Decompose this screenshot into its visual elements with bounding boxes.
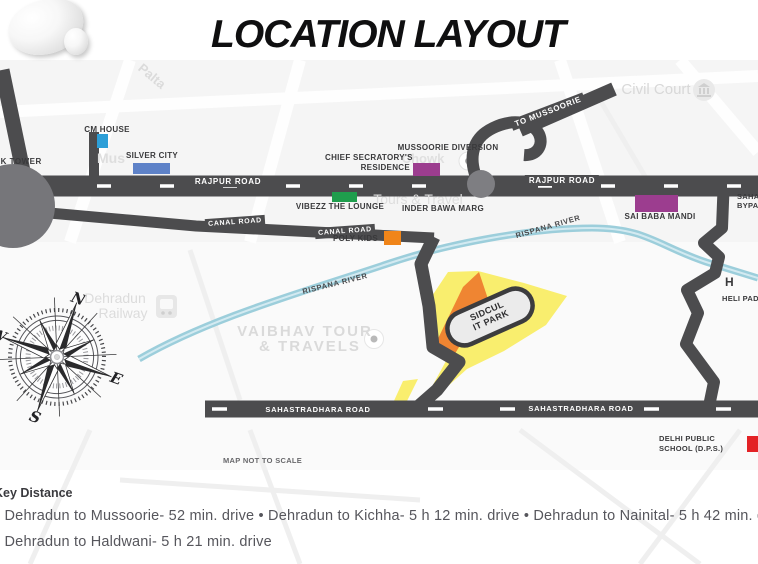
bypass-line-2: BYPASS (737, 202, 758, 211)
marker-delhi-public-school (747, 436, 758, 452)
label-vibezz-the-lounge: VIBEZZ THE LOUNGE (296, 202, 384, 211)
chief-line-1: CHIEF SECRATORY'S (325, 153, 410, 163)
label-heli-pad: HELI PAD (722, 294, 758, 303)
bg-label-dehradun-railway-2: Railway (98, 305, 147, 321)
label-heli-pad-h: H (725, 278, 734, 287)
pearl-decoration-small-icon (64, 28, 88, 55)
key-distance-line-2: • Dehradun to Haldwani- 5 h 21 min. driv… (0, 534, 272, 550)
road-label-rajpur-east: RAJPUR ROAD (525, 175, 599, 186)
road-label-rajpur-west: RAJPUR ROAD (191, 176, 265, 187)
chief-line-2: RESIDENCE (325, 163, 410, 173)
label-poly-kids: POLY KIDS (333, 234, 378, 243)
label-cm-house: CM HOUSE (84, 125, 130, 134)
map-wash-mid (0, 242, 758, 470)
rajpur-roundabout (467, 170, 495, 198)
marker-chief-secratorys-residence (413, 163, 440, 176)
label-delhi-public-school: DELHI PUBLIC SCHOOL (D.P.S.) (659, 434, 723, 453)
map-scale-note: MAP NOT TO SCALE (223, 456, 302, 465)
marker-poly-kids (384, 231, 401, 245)
key-distance-heading: Key Distance (0, 486, 73, 500)
label-mussoorie-diversion: MUSSOORIE DIVERSION (398, 143, 499, 152)
location-layout-slide: N E S W Palta Mus Chowk Tours & Travel C… (0, 0, 758, 564)
marker-vibezz-the-lounge (332, 192, 357, 202)
page-title: LOCATION LAYOUT (211, 13, 565, 57)
dps-line-1: DELHI PUBLIC (659, 434, 723, 444)
marker-silver-city (133, 163, 170, 174)
railway-icon (156, 295, 177, 318)
marker-cm-house (97, 134, 108, 148)
civil-court-icon (693, 79, 715, 101)
label-sai-baba-mandi: SAI BABA MANDI (624, 212, 695, 221)
bg-label-vaibhav-2: & TRAVELS (259, 338, 361, 355)
label-silver-city: SILVER CITY (126, 151, 178, 160)
bg-label-dehradun-railway-1: Dehradun (84, 290, 146, 306)
road-label-sahastradhara-east: SAHASTRADHARA ROAD (524, 403, 637, 414)
road-label-sahastradhara-bypass: SAHASTRADHARA BYPASS (737, 193, 758, 210)
road-label-inder-bawa-marg: INDER BAWA MARG (402, 204, 484, 213)
road-label-clock-tower: CLOCK TOWER (0, 157, 42, 166)
dps-line-2: SCHOOL (D.P.S.) (659, 444, 723, 454)
key-distance-line-1: • Dehradun to Mussoorie- 52 min. drive •… (0, 508, 758, 524)
bg-label-civil-court: Civil Court (621, 81, 690, 98)
marker-sai-baba-mandi (635, 195, 678, 212)
road-label-sahastradhara-west: SAHASTRADHARA ROAD (261, 404, 374, 415)
label-chief-secratorys-residence: CHIEF SECRATORY'S RESIDENCE (325, 153, 410, 173)
bg-label-mus: Mus (97, 150, 125, 166)
